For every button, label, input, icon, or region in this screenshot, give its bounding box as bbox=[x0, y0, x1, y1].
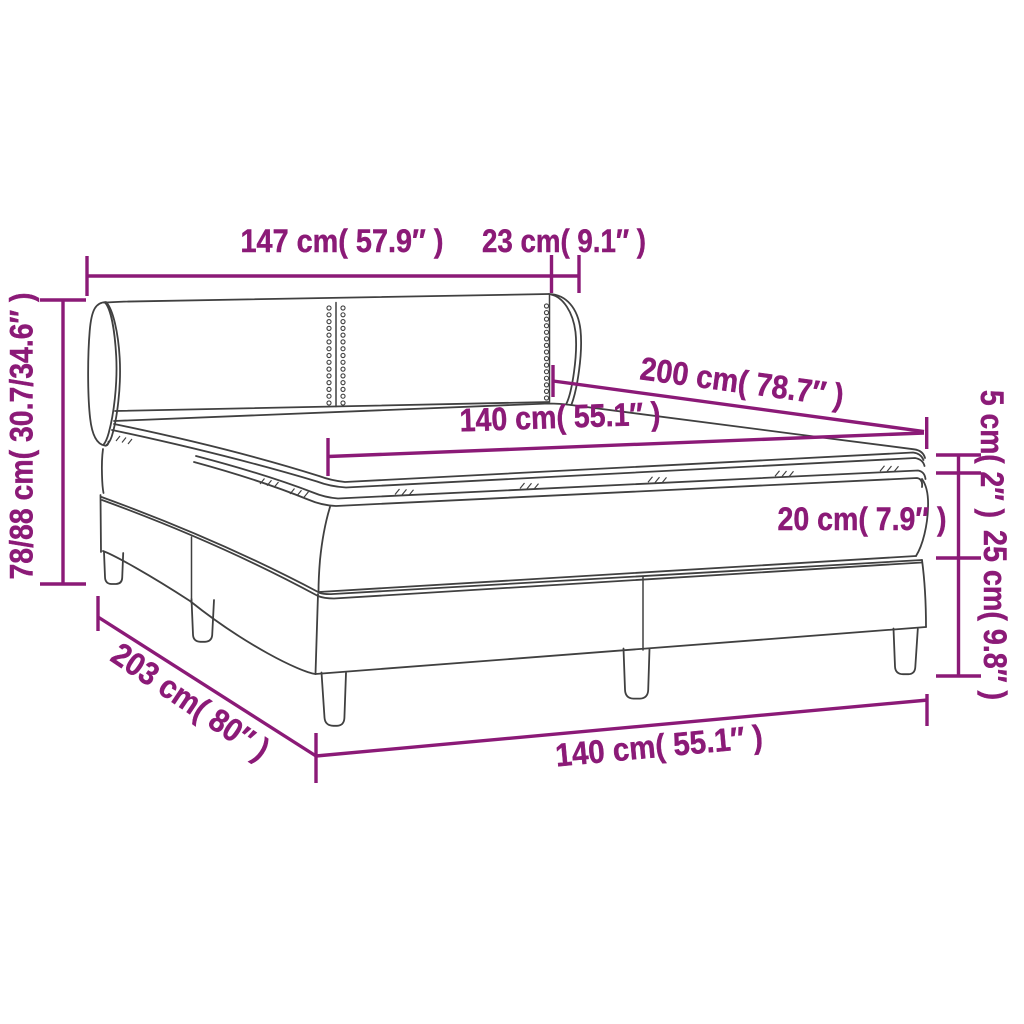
svg-text:23 cm( 9.1″ ): 23 cm( 9.1″ ) bbox=[482, 223, 646, 259]
svg-text:5 cm( 2″ ): 5 cm( 2″ ) bbox=[974, 390, 1010, 518]
svg-text:25 cm( 9.8″ ): 25 cm( 9.8″ ) bbox=[977, 530, 1013, 700]
svg-text:78/88 cm( 30.7/34.6″ ): 78/88 cm( 30.7/34.6″ ) bbox=[4, 293, 40, 580]
svg-text:147 cm( 57.9″ ): 147 cm( 57.9″ ) bbox=[241, 223, 444, 259]
svg-text:20 cm( 7.9″ ): 20 cm( 7.9″ ) bbox=[778, 501, 947, 537]
svg-text:140 cm( 55.1″ ): 140 cm( 55.1″ ) bbox=[459, 396, 661, 439]
